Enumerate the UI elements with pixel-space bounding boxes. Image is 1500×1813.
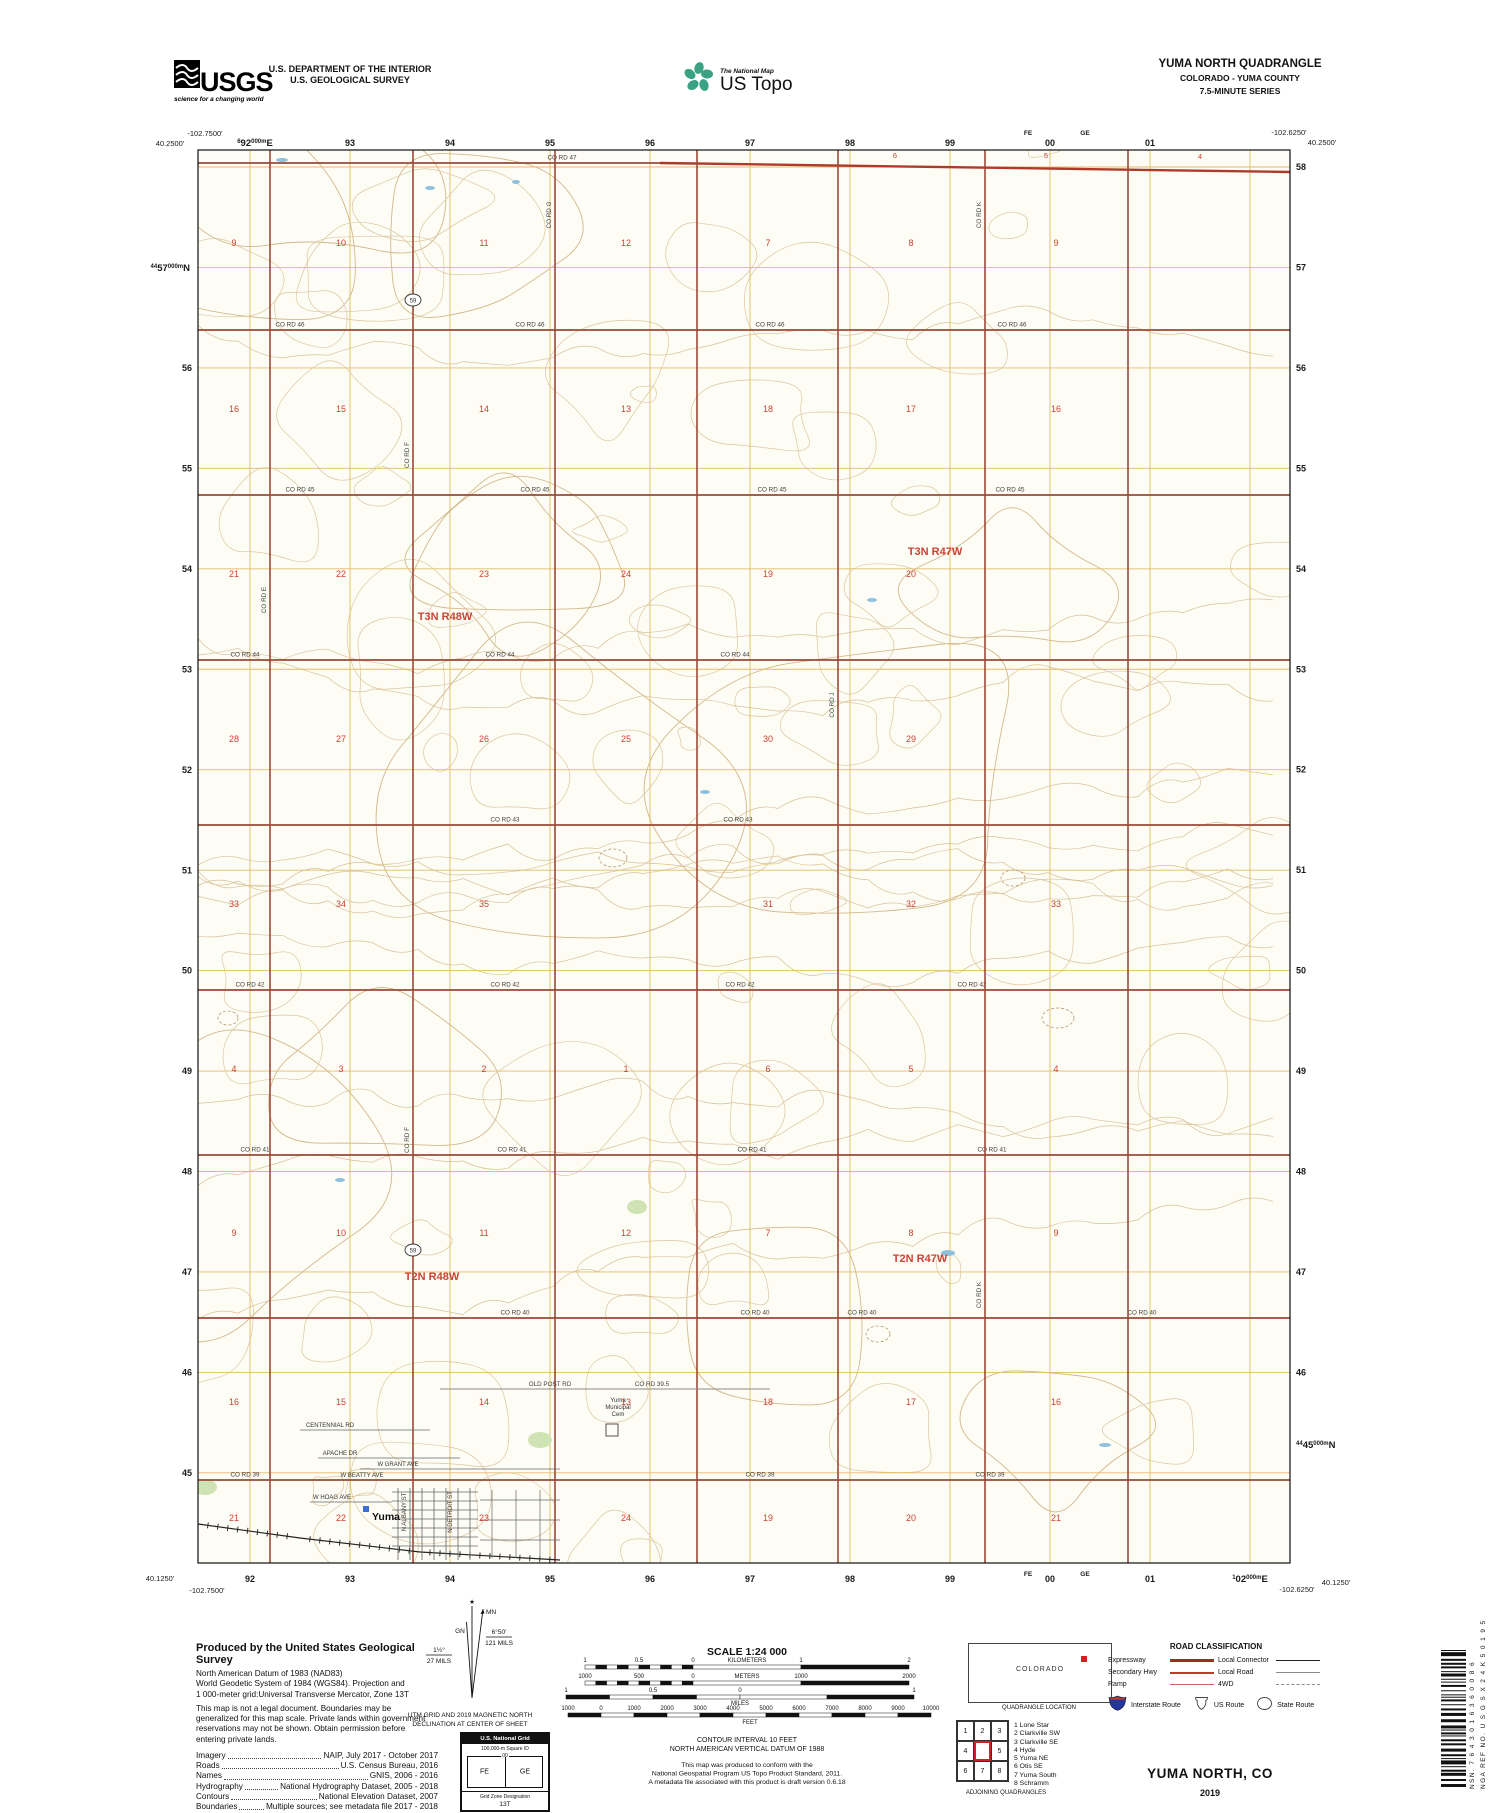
barcode-stripe bbox=[1441, 1735, 1466, 1736]
street-label: W GRANT AVE bbox=[377, 1462, 418, 1468]
map-background bbox=[198, 150, 1290, 1563]
state-route-number: 59 bbox=[410, 1248, 417, 1254]
street-label: N ALBANY ST bbox=[402, 1492, 408, 1531]
scale-label: 500 bbox=[634, 1674, 645, 1680]
corner-coordinate: -102.7500' bbox=[187, 129, 223, 138]
grid-label: 52 bbox=[182, 765, 192, 775]
scale-bar-segment bbox=[661, 1681, 672, 1685]
barcode-stripe bbox=[1441, 1697, 1466, 1698]
scale-bar-segment bbox=[653, 1695, 697, 1699]
road-label: CO RD 41 bbox=[977, 1147, 1007, 1154]
road-label: CO RD F bbox=[404, 1127, 411, 1153]
street-label: N DETROIT ST bbox=[448, 1491, 454, 1533]
usng-square-fe: FE bbox=[480, 1769, 489, 1776]
scale-unit: FEET bbox=[742, 1720, 758, 1726]
town-label: Yuma bbox=[372, 1511, 400, 1523]
pond bbox=[335, 1178, 345, 1182]
scale-bar-segment bbox=[898, 1713, 931, 1717]
adjoining-name: 7 Yuma South bbox=[1014, 1772, 1060, 1780]
usng-gzd-label: Grid Zone Designation bbox=[462, 1791, 548, 1800]
corner-coordinate: -102.6250' bbox=[1271, 128, 1307, 137]
grid-label: 56 bbox=[182, 363, 192, 373]
contour-interval-note: CONTOUR INTERVAL 10 FEET bbox=[697, 1737, 798, 1744]
grid-label: 00 bbox=[1045, 138, 1055, 148]
road-label: CO RD E bbox=[261, 587, 268, 613]
adjoining-name: 1 Lone Star bbox=[1014, 1722, 1060, 1730]
scale-label: 3000 bbox=[693, 1706, 707, 1712]
barcode-stripe bbox=[1441, 1770, 1466, 1772]
scale-bar-segment bbox=[693, 1665, 801, 1669]
road-label: CO RD 41 bbox=[240, 1147, 270, 1154]
section-number: 19 bbox=[763, 569, 773, 579]
grid-label: 45 bbox=[182, 1468, 192, 1478]
section-number: 3 bbox=[338, 1064, 343, 1074]
road-class-shields: Interstate Route US Route State Route bbox=[1108, 1695, 1324, 1716]
street-label: W HOAG AVE bbox=[313, 1495, 351, 1501]
barcode-stripe bbox=[1441, 1760, 1466, 1764]
scale-label: 1000 bbox=[561, 1706, 575, 1712]
scale-label: 2000 bbox=[902, 1674, 916, 1680]
grid-label: 56 bbox=[1296, 363, 1306, 373]
credits-list: ImageryNAIP, July 2017 - October 2017Roa… bbox=[196, 1751, 438, 1813]
adjoining-cell: 6 bbox=[957, 1761, 974, 1781]
scale-label: 6000 bbox=[792, 1706, 806, 1712]
scale-bar-segment bbox=[617, 1681, 628, 1685]
barcode-stripe bbox=[1441, 1784, 1466, 1787]
state-route-label: State Route bbox=[1277, 1702, 1314, 1709]
barcode-stripe bbox=[1441, 1659, 1466, 1661]
road-class-sample bbox=[1170, 1672, 1214, 1674]
road-label: CO RD 45 bbox=[995, 487, 1025, 494]
grid-reference: 4445000mN bbox=[1296, 1440, 1336, 1451]
road-class-sample bbox=[1276, 1660, 1320, 1661]
section-number: 9 bbox=[1053, 238, 1058, 248]
township-label: T3N R48W bbox=[418, 611, 473, 623]
state-label: COLORADO bbox=[969, 1666, 1111, 1673]
scale-bar-segment bbox=[610, 1695, 654, 1699]
road-label: CO RD 39 bbox=[745, 1472, 775, 1479]
road-label: CO RD 39 bbox=[975, 1472, 1005, 1479]
street-label: W BEATTY AVE bbox=[340, 1473, 383, 1479]
road-classification-legend: ROAD CLASSIFICATION ExpresswayLocal Conn… bbox=[1108, 1642, 1324, 1716]
scale-label: 0 bbox=[599, 1706, 603, 1712]
corner-coordinate: 40.2500' bbox=[1308, 138, 1337, 147]
conformance-note: This map was produced to conform with th… bbox=[681, 1762, 813, 1769]
section-number: 33 bbox=[229, 899, 239, 909]
grid-label: 99 bbox=[945, 1574, 955, 1584]
section-number: 8 bbox=[908, 1228, 913, 1238]
scale-bar-segment bbox=[628, 1665, 639, 1669]
scale-bar-segment bbox=[671, 1665, 682, 1669]
road-class-label: Ramp bbox=[1108, 1681, 1170, 1688]
conformance-note: National Geospatial Program US Topo Prod… bbox=[652, 1771, 842, 1778]
corner-coordinate: -102.7500' bbox=[189, 1586, 225, 1595]
road-label: CO RD 46 bbox=[515, 322, 545, 329]
nga-ref-number: NGA REF NO. U S G S X 2 4 K 5 0 1 9 5 bbox=[1480, 1619, 1487, 1789]
section-number: 4 bbox=[1198, 152, 1202, 161]
road-label: CO RD 40 bbox=[500, 1310, 530, 1317]
barcode-stripe bbox=[1441, 1666, 1466, 1668]
road-class-label: Local Connector bbox=[1218, 1657, 1276, 1664]
section-number: 5 bbox=[908, 1064, 913, 1074]
section-number: 31 bbox=[763, 899, 773, 909]
section-number: 22 bbox=[336, 1513, 346, 1523]
grid-label: 96 bbox=[645, 138, 655, 148]
section-number: 34 bbox=[336, 899, 346, 909]
credit-row: NamesGNIS, 2006 - 2016 bbox=[196, 1771, 438, 1781]
grid-label: 51 bbox=[182, 865, 192, 875]
section-number: 16 bbox=[229, 404, 239, 414]
usng-title: U.S. National Grid bbox=[462, 1734, 548, 1744]
barcode-stripe bbox=[1441, 1674, 1466, 1677]
barcode-stripe bbox=[1441, 1685, 1466, 1687]
scale-label: 1 bbox=[912, 1688, 916, 1694]
grid-label: 57 bbox=[1296, 262, 1306, 272]
grid-label: 46 bbox=[1296, 1367, 1306, 1377]
barcode-stripe bbox=[1441, 1690, 1466, 1691]
section-number: 27 bbox=[336, 734, 346, 744]
grid-north-label: GN bbox=[455, 1628, 465, 1635]
adjoining-name: 6 Otis SE bbox=[1014, 1763, 1060, 1771]
section-number: 17 bbox=[906, 1397, 916, 1407]
grid-label: 93 bbox=[345, 138, 355, 148]
section-number: 11 bbox=[479, 1228, 488, 1238]
grid-label: 54 bbox=[182, 564, 192, 574]
scale-bar-segment bbox=[667, 1713, 700, 1717]
barcode-stripe bbox=[1441, 1682, 1466, 1683]
road-label: CO RD 44 bbox=[485, 652, 515, 659]
scale-bar-segment bbox=[639, 1681, 650, 1685]
section-number: 16 bbox=[229, 1397, 239, 1407]
section-number: 22 bbox=[336, 569, 346, 579]
sheet-year: 2019 bbox=[1100, 1788, 1320, 1798]
sheet-title-block: YUMA NORTH, CO 2019 bbox=[1100, 1766, 1320, 1798]
usng-square-ge: GE bbox=[520, 1769, 530, 1776]
barcode-stripe bbox=[1441, 1732, 1466, 1734]
barcode-stripe bbox=[1441, 1754, 1466, 1756]
section-number: 9 bbox=[231, 1228, 236, 1238]
grid-label: 92 bbox=[245, 1574, 255, 1584]
barcode-stripe bbox=[1441, 1708, 1466, 1710]
road-label: CO RD 40 bbox=[847, 1310, 877, 1317]
street-label: APACHE DR bbox=[323, 1451, 358, 1457]
grid-label: 98 bbox=[845, 138, 855, 148]
adjoining-cell: 1 bbox=[957, 1721, 974, 1741]
state-route-icon bbox=[1256, 1696, 1273, 1716]
section-number: 13 bbox=[621, 404, 631, 414]
section-number: 6 bbox=[893, 151, 897, 160]
road-class-label: 4WD bbox=[1218, 1681, 1276, 1688]
barcode-stripe bbox=[1441, 1749, 1466, 1752]
produced-title: Produced by the United States Geological… bbox=[196, 1642, 438, 1666]
section-number: 4 bbox=[1053, 1064, 1058, 1074]
road-label: CO RD 47 bbox=[547, 155, 577, 162]
section-number: 23 bbox=[479, 1513, 489, 1523]
section-number: 21 bbox=[229, 569, 239, 579]
grid-label: 53 bbox=[182, 664, 192, 674]
section-number: 17 bbox=[906, 404, 916, 414]
grid-label: 51 bbox=[1296, 865, 1306, 875]
barcode-stripe bbox=[1441, 1779, 1466, 1781]
road-label: CO RD 43 bbox=[490, 817, 520, 824]
map-line bbox=[467, 1622, 473, 1698]
road-label: CO RD 45 bbox=[757, 487, 787, 494]
scale-bar-segment bbox=[585, 1665, 596, 1669]
road-class-sample bbox=[1276, 1684, 1320, 1685]
grid-reference: 692000mE bbox=[237, 138, 273, 149]
section-number: 12 bbox=[621, 238, 631, 248]
scale-label: 2 bbox=[907, 1658, 911, 1664]
section-number: 18 bbox=[763, 404, 773, 414]
scale-label: 1 bbox=[583, 1658, 587, 1664]
vegetation-patch bbox=[627, 1200, 647, 1214]
credit-row: ContoursNational Elevation Dataset, 2007 bbox=[196, 1792, 438, 1802]
barcode-stripe bbox=[1441, 1766, 1466, 1767]
road-label: CO RD J bbox=[829, 692, 836, 717]
adjoining-cell: 3 bbox=[991, 1721, 1008, 1741]
barcode-stripe bbox=[1441, 1739, 1466, 1741]
nsn-number: NSN. 7 6 4 3 0 1 6 3 6 0 0 8 6 bbox=[1469, 1661, 1476, 1789]
building-symbol bbox=[363, 1506, 369, 1512]
barcode-stripe bbox=[1441, 1694, 1466, 1695]
road-label: CO RD 39.5 bbox=[635, 1381, 670, 1388]
sheet-title: YUMA NORTH, CO bbox=[1100, 1766, 1320, 1781]
grid-label: 46 bbox=[182, 1368, 192, 1378]
usng-diagram: 00 FE GE bbox=[467, 1756, 543, 1788]
road-label: CO RD K bbox=[976, 1281, 983, 1308]
scale-label: 10000 bbox=[923, 1706, 940, 1712]
datum-line: North American Datum of 1983 (NAD83) bbox=[196, 1669, 438, 1679]
credit-row: HydrographyNational Hydrography Dataset,… bbox=[196, 1782, 438, 1792]
magnetic-north-label: MN bbox=[486, 1609, 496, 1616]
interstate-shield-icon bbox=[1108, 1695, 1127, 1716]
usng-gzd-value: 13T bbox=[462, 1800, 548, 1810]
grid-reference: 4457000mN bbox=[151, 263, 191, 274]
scale-bar-segment bbox=[799, 1713, 832, 1717]
scale-bar-segment bbox=[628, 1681, 639, 1685]
section-number: 21 bbox=[1051, 1513, 1061, 1523]
scale-bar-segment bbox=[801, 1665, 909, 1669]
scale-bar-segment bbox=[607, 1681, 618, 1685]
conformance-note: A metadata file associated with this pro… bbox=[648, 1779, 845, 1786]
section-number: 10 bbox=[336, 1228, 346, 1238]
road-label: CO RD 44 bbox=[720, 652, 750, 659]
section-number: 23 bbox=[479, 569, 489, 579]
section-number: 11 bbox=[479, 238, 488, 248]
scale-bar-segment bbox=[700, 1713, 733, 1717]
credit-row: BoundariesMultiple sources; see metadata… bbox=[196, 1802, 438, 1812]
road-label: CO RD 45 bbox=[520, 487, 550, 494]
scale-bar-segment bbox=[693, 1681, 801, 1685]
legal-line: generalized for this map scale. Private … bbox=[196, 1714, 438, 1724]
section-number: 16 bbox=[1051, 404, 1061, 414]
section-number: 14 bbox=[479, 404, 489, 414]
quadrangle-location-box: COLORADO bbox=[968, 1643, 1112, 1703]
section-number: 30 bbox=[763, 734, 773, 744]
square-id-label: FE bbox=[1024, 1571, 1033, 1578]
grid-label: 95 bbox=[545, 1574, 555, 1584]
production-notes: Produced by the United States Geological… bbox=[196, 1642, 438, 1813]
state-route-number: 59 bbox=[410, 298, 417, 304]
scale-label: 0.5 bbox=[649, 1688, 658, 1694]
section-number: 9 bbox=[1053, 1228, 1058, 1238]
grid-label: 97 bbox=[745, 1574, 755, 1584]
map-canvas: CO RD 47CO RD 46CO RD 46CO RD 46CO RD 46… bbox=[0, 0, 1500, 1813]
section-number: 8 bbox=[908, 238, 913, 248]
section-number: 20 bbox=[906, 569, 916, 579]
scale-bar-segment bbox=[766, 1713, 799, 1717]
corner-coordinate: 40.1250' bbox=[1322, 1578, 1351, 1587]
usng-divider bbox=[505, 1757, 506, 1787]
road-label: OLD POST RD bbox=[529, 1381, 572, 1388]
vertical-datum-note: NORTH AMERICAN VERTICAL DATUM OF 1988 bbox=[670, 1746, 825, 1753]
road-label: CO RD 45 bbox=[285, 487, 315, 494]
road-label: CO RD 42 bbox=[725, 982, 755, 989]
scale-block: SCALE 1:24 00010.50KILOMETERS1210005000M… bbox=[561, 1646, 940, 1786]
road-label: CO RD 41 bbox=[497, 1147, 527, 1154]
section-number: 26 bbox=[479, 734, 489, 744]
declination-degrees: 6°50' bbox=[492, 1628, 507, 1636]
adjoining-cell: 5 bbox=[991, 1741, 1008, 1761]
square-id-label: FE bbox=[1024, 130, 1033, 137]
barcode-stripe bbox=[1441, 1743, 1466, 1745]
scale-bar-segment bbox=[617, 1665, 628, 1669]
section-number: 13 bbox=[621, 1397, 631, 1407]
scale-bar-segment bbox=[596, 1665, 607, 1669]
road-label: CO RD 39 bbox=[230, 1472, 260, 1479]
scale-label: 5000 bbox=[759, 1706, 773, 1712]
square-id-label: GE bbox=[1080, 130, 1090, 137]
section-number: 19 bbox=[763, 1513, 773, 1523]
section-number: 5 bbox=[1044, 151, 1048, 160]
corner-coordinate: 40.2500' bbox=[156, 139, 185, 148]
barcode-stripe bbox=[1441, 1719, 1466, 1722]
section-number: 20 bbox=[906, 1513, 916, 1523]
quad-location-caption: QUADRANGLE LOCATION bbox=[968, 1705, 1110, 1711]
road-class-sample bbox=[1170, 1684, 1214, 1685]
datum-line: 1 000-meter grid:Universal Transverse Me… bbox=[196, 1690, 438, 1700]
scale-label: 7000 bbox=[825, 1706, 839, 1712]
grid-reference: 102000mE bbox=[1232, 1574, 1268, 1585]
grid-label: 94 bbox=[445, 138, 455, 148]
scale-title: SCALE 1:24 000 bbox=[707, 1646, 787, 1658]
datum-line: World Geodetic System of 1984 (WGS84). P… bbox=[196, 1679, 438, 1689]
corner-coordinate: 40.1250' bbox=[146, 1574, 175, 1583]
section-number: 4 bbox=[231, 1064, 236, 1074]
road-label: CO RD F bbox=[404, 442, 411, 468]
grid-label: 01 bbox=[1145, 1574, 1155, 1584]
grid-label: 52 bbox=[1296, 765, 1306, 775]
scale-bar-segment bbox=[607, 1665, 618, 1669]
scale-label: 1000 bbox=[578, 1674, 592, 1680]
section-number: 16 bbox=[1051, 1397, 1061, 1407]
barcode-stripe bbox=[1441, 1671, 1466, 1672]
section-number: 15 bbox=[336, 1397, 346, 1407]
adjoining-cell: 4 bbox=[957, 1741, 974, 1761]
grid-label: 55 bbox=[182, 463, 192, 473]
barcode: NSN. 7 6 4 3 0 1 6 3 6 0 0 8 6NGA REF NO… bbox=[1441, 1619, 1487, 1789]
section-number: 35 bbox=[479, 899, 489, 909]
grid-label: 95 bbox=[545, 138, 555, 148]
grid-label: 96 bbox=[645, 1574, 655, 1584]
scale-label: 0 bbox=[738, 1688, 742, 1694]
road-label: CO RD 46 bbox=[755, 322, 785, 329]
section-number: 10 bbox=[336, 238, 346, 248]
scale-bar-segment bbox=[566, 1695, 610, 1699]
road-class-rows: ExpresswayLocal ConnectorSecondary HwyLo… bbox=[1108, 1657, 1324, 1688]
adjoining-name: 2 Clarkville SW bbox=[1014, 1730, 1060, 1738]
grid-label: 47 bbox=[182, 1267, 192, 1277]
road-class-title: ROAD CLASSIFICATION bbox=[1108, 1642, 1324, 1651]
section-number: 9 bbox=[231, 238, 236, 248]
scale-bar-segment bbox=[697, 1695, 741, 1699]
scale-bar-segment bbox=[601, 1713, 634, 1717]
scale-label: METERS bbox=[734, 1674, 759, 1680]
township-label: T3N R47W bbox=[908, 546, 963, 558]
barcode-stripe bbox=[1441, 1730, 1466, 1731]
section-number: 14 bbox=[479, 1397, 489, 1407]
street-label: CENTENNIAL RD bbox=[306, 1423, 355, 1429]
scale-bar-segment bbox=[585, 1681, 596, 1685]
section-number: 24 bbox=[621, 569, 631, 579]
adjoining-quads-grid: 12345678 bbox=[956, 1720, 1009, 1782]
corner-coordinate: -102.6250' bbox=[1279, 1585, 1315, 1594]
scale-bar-segment bbox=[634, 1713, 667, 1717]
adjoining-cell: 2 bbox=[974, 1721, 991, 1741]
section-number: 1 bbox=[623, 1064, 628, 1074]
scale-bar-segment bbox=[568, 1713, 601, 1717]
road-label: CO RD K bbox=[976, 201, 983, 228]
scale-bar-segment bbox=[650, 1681, 661, 1685]
adjoining-cell: 7 bbox=[974, 1761, 991, 1781]
legal-line: This map is not a legal document. Bounda… bbox=[196, 1704, 438, 1714]
pond bbox=[512, 180, 520, 184]
us-route-label: US Route bbox=[1214, 1702, 1244, 1709]
adjoining-name: 8 Schramm bbox=[1014, 1780, 1060, 1788]
grid-label: 94 bbox=[445, 1574, 455, 1584]
scale-label: 0 bbox=[691, 1658, 695, 1664]
cemetery-label: Cem bbox=[612, 1412, 625, 1418]
section-number: 28 bbox=[229, 734, 239, 744]
grid-label: 97 bbox=[745, 138, 755, 148]
scale-bar-segment bbox=[671, 1681, 682, 1685]
barcode-stripe bbox=[1441, 1663, 1466, 1665]
scale-label: 9000 bbox=[891, 1706, 905, 1712]
barcode-stripe bbox=[1441, 1704, 1466, 1705]
pond bbox=[1099, 1443, 1111, 1447]
road-label: CO RD 46 bbox=[997, 322, 1027, 329]
quad-location-marker bbox=[1081, 1656, 1087, 1662]
road-label: CO RD 43 bbox=[723, 817, 753, 824]
barcode-stripe bbox=[1441, 1758, 1466, 1759]
us-route-shield-icon bbox=[1193, 1696, 1210, 1716]
scale-bar-segment bbox=[827, 1695, 914, 1699]
section-number: 33 bbox=[1051, 899, 1061, 909]
interstate-route-label: Interstate Route bbox=[1131, 1702, 1181, 1709]
adjoining-quads-caption: ADJOINING QUADRANGLES bbox=[942, 1790, 1070, 1796]
section-number: 29 bbox=[906, 734, 916, 744]
road-class-sample bbox=[1170, 1659, 1214, 1662]
pond bbox=[425, 186, 435, 190]
grid-label: 55 bbox=[1296, 463, 1306, 473]
barcode-stripe bbox=[1441, 1699, 1466, 1701]
road-class-label: Expressway bbox=[1108, 1657, 1170, 1664]
section-number: 6 bbox=[765, 1064, 770, 1074]
vegetation-patch bbox=[528, 1432, 552, 1448]
scale-label: 1 bbox=[564, 1688, 568, 1694]
usng-box: U.S. National Grid 100,000-m Square ID 0… bbox=[460, 1732, 550, 1812]
grid-label: 47 bbox=[1296, 1267, 1306, 1277]
